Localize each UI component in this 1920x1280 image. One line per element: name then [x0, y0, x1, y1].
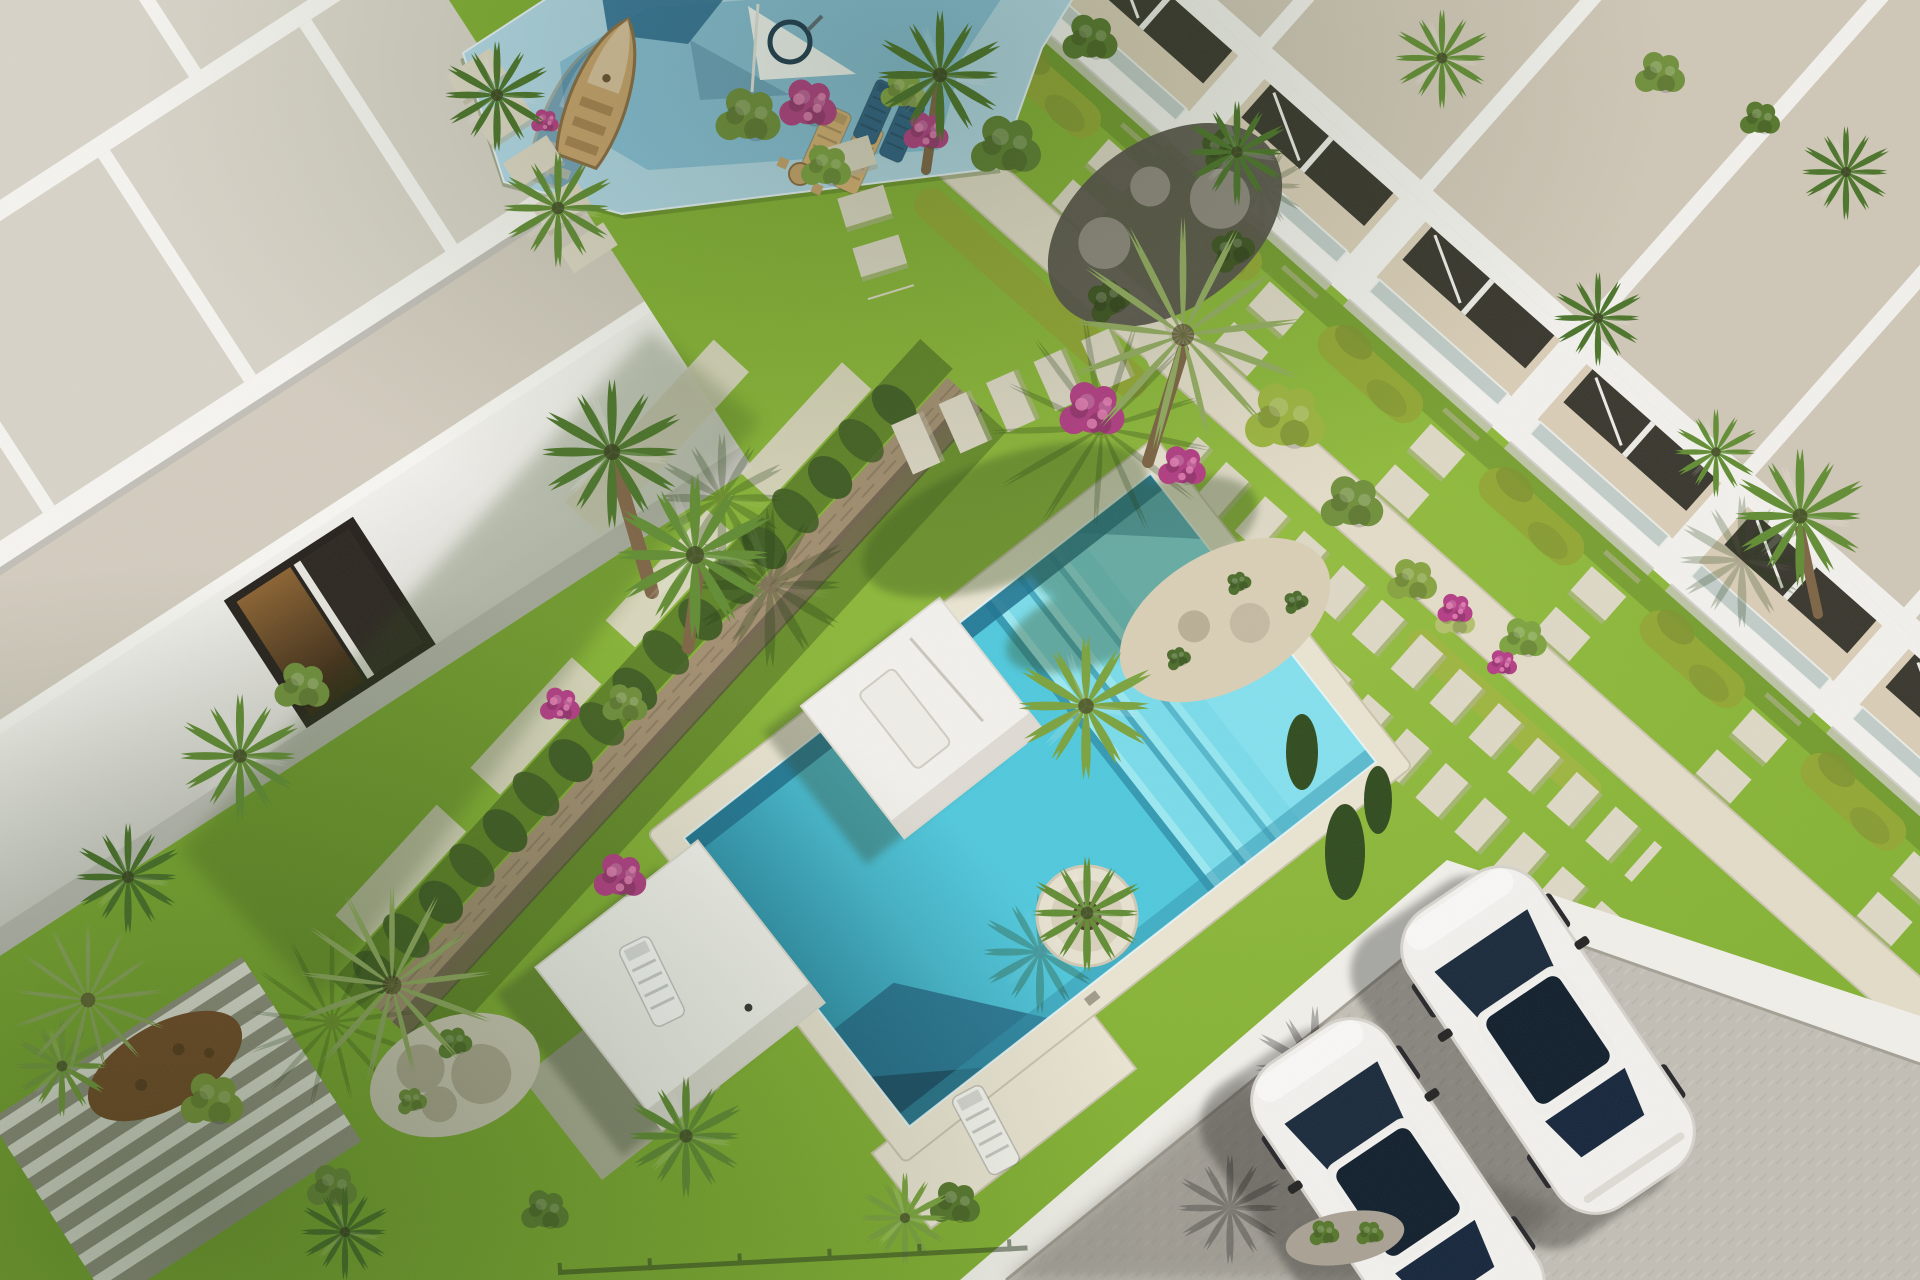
grain-overlay [0, 0, 1920, 1280]
aerial-render [0, 0, 1920, 1280]
screenshot-root [0, 0, 1920, 1280]
